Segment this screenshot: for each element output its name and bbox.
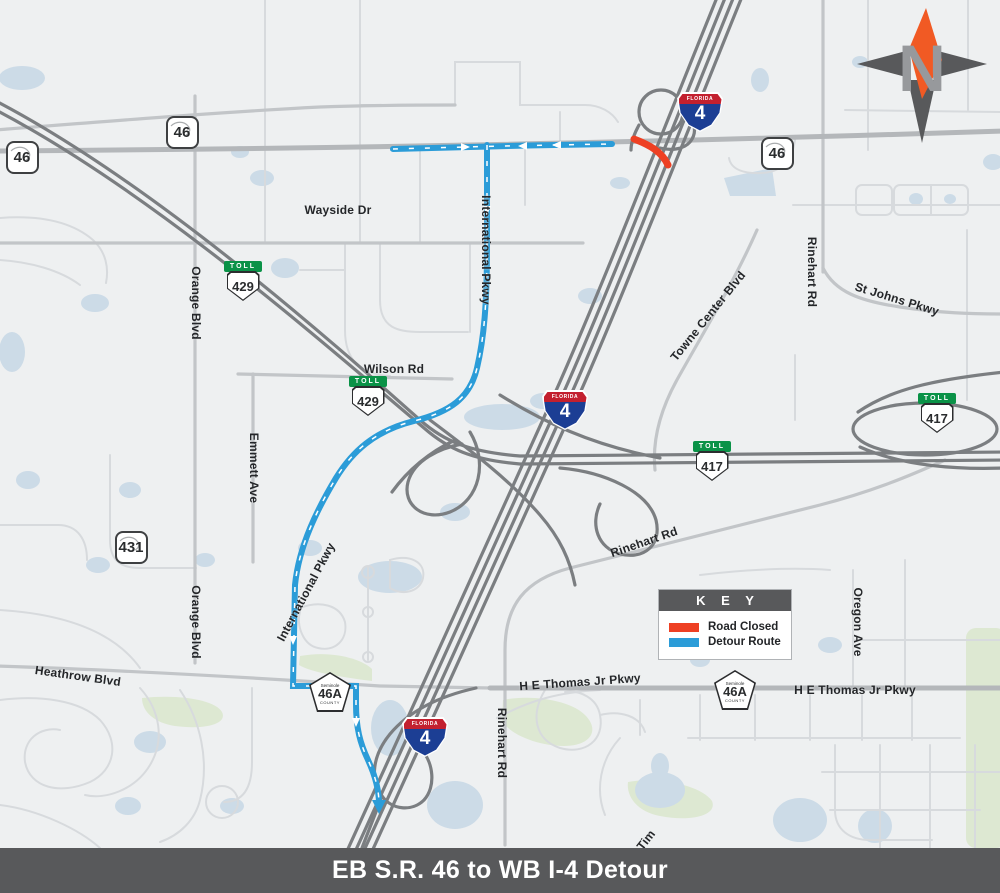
road-label-wayside-dr: Wayside Dr [305,203,372,217]
road-label-international-pkwy-north: International Pkwy [479,195,493,305]
road-label-orange-blvd-south: Orange Blvd [189,585,203,659]
legend: K E Y Road Closed Detour Route [658,589,792,660]
detour-route-swatch [669,638,699,647]
road-label-he-thomas-east: H E Thomas Jr Pkwy [794,683,916,697]
route-shield-toll-417-east: TOLL 417 [918,393,956,433]
route-shield-cr46a-west: Seminole46ACOUNTY [309,672,351,712]
legend-item-detour-route: Detour Route [669,636,783,648]
route-shield-toll-417-west: TOLL 417 [693,441,731,481]
road-label-oregon-ave: Oregon Ave [851,587,865,656]
detour-map: Wayside Dr Wilson Rd Orange Blvd Orange … [0,0,1000,848]
road-label-rinehart-rd-north: Rinehart Rd [805,237,819,307]
route-shield-toll-429-south: TOLL 429 [349,376,387,416]
title-bar: EB S.R. 46 to WB I-4 Detour [0,848,1000,893]
route-shield-i4-north: FLORIDA4 [677,92,723,132]
detour-arrows [289,141,561,727]
road-label-wilson-rd: Wilson Rd [364,362,424,376]
road-label-rinehart-rd-south: Rinehart Rd [495,708,509,778]
map-title: EB S.R. 46 to WB I-4 Detour [332,856,668,885]
route-shield-cr46a-east: Seminole46ACOUNTY [714,670,756,710]
legend-item-road-closed: Road Closed [669,621,783,633]
route-shield-i4-mid: FLORIDA4 [542,390,588,430]
road-label-orange-blvd-north: Orange Blvd [189,266,203,340]
route-shield-i4-south: FLORIDA4 [402,717,448,757]
svg-text:N: N [898,31,946,105]
route-shield-toll-429-north: TOLL 429 [224,261,262,301]
road-closed-swatch [669,623,699,632]
legend-header: K E Y [659,590,791,611]
road-label-emmett-ave: Emmett Ave [247,433,261,503]
